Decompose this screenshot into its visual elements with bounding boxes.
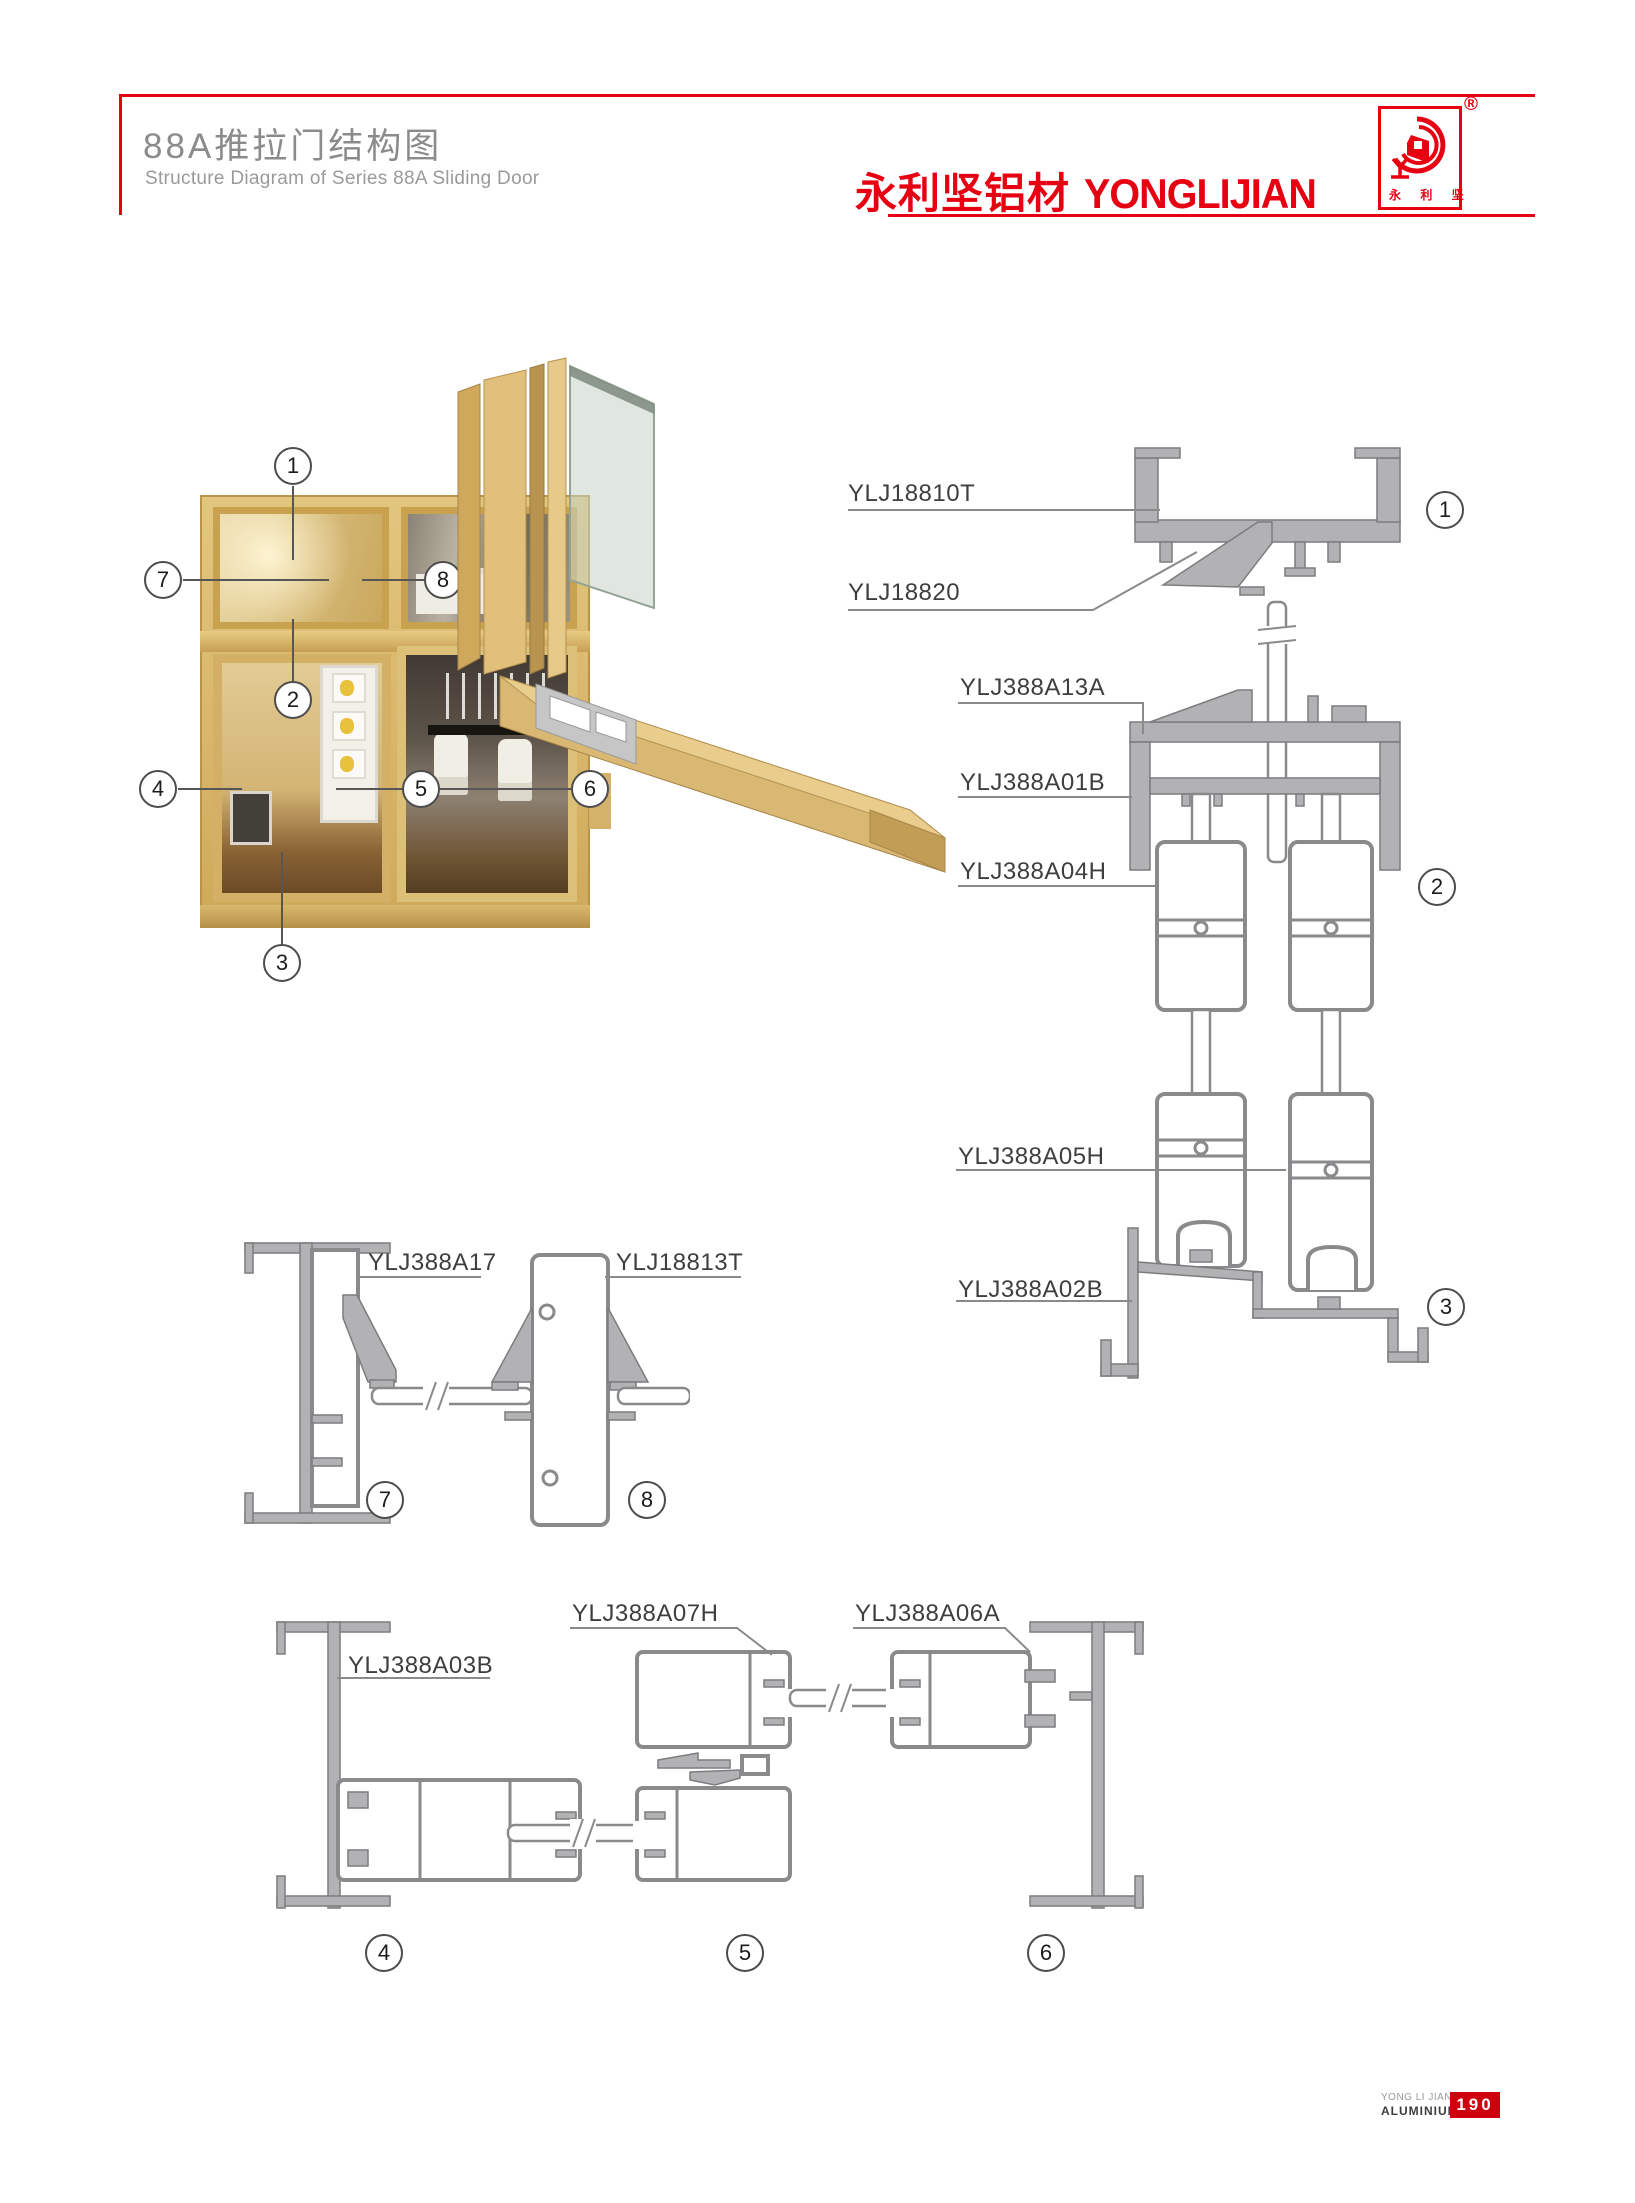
callout-7-drawing: 7 [366, 1481, 404, 1519]
callout-8-drawing: 8 [628, 1481, 666, 1519]
callout-5-photo: 5 [402, 770, 440, 808]
underline-ylj388a06a [853, 1627, 1006, 1629]
underline-ylj388a05h [956, 1169, 1286, 1171]
underline-ylj388a04h [958, 885, 1158, 887]
callout-2-photo: 2 [274, 681, 312, 719]
brand-logo-caption: 永 利 坚 [1381, 186, 1459, 203]
underline-ylj388a13a [958, 702, 1144, 704]
underline-ylj388a07h [570, 1627, 738, 1629]
brand-logo: 永 利 坚 [1378, 106, 1462, 210]
part-label-ylj388a03b: YLJ388A03B [348, 1652, 493, 1680]
leader-3 [281, 852, 283, 944]
brand-logo-mark-icon [1381, 111, 1459, 183]
part-label-ylj18813t: YLJ18813T [616, 1249, 743, 1277]
part-label-ylj388a05h: YLJ388A05H [958, 1143, 1104, 1171]
profile-3d-render [440, 340, 960, 890]
leader-8 [362, 579, 424, 581]
leader-2 [292, 619, 294, 681]
part-label-ylj388a17: YLJ388A17 [368, 1249, 497, 1277]
part-label-ylj388a06a: YLJ388A06A [855, 1600, 1000, 1628]
footer-company-line1: YONG LI JIAN [1381, 2092, 1452, 2103]
brand-name-en: YONGLIJIAN [1084, 170, 1316, 218]
callout-3-drawing: 3 [1427, 1288, 1465, 1326]
brand-wordmark: 永利坚铝材 YONGLIJIAN [855, 160, 1335, 221]
underline-ylj388a01b [958, 796, 1132, 798]
header-left-rule [119, 94, 122, 215]
part-label-ylj388a13a: YLJ388A13A [960, 674, 1105, 702]
leader-1 [292, 486, 294, 560]
callout-5-drawing: 5 [726, 1934, 764, 1972]
callout-4-photo: 4 [139, 770, 177, 808]
registered-mark: ® [1464, 94, 1478, 116]
underline-ylj388a02b [956, 1300, 1132, 1302]
underline-ylj18820 [848, 609, 1093, 611]
callout-7-photo: 7 [144, 561, 182, 599]
leader-7 [183, 579, 329, 581]
callout-6-drawing: 6 [1027, 1934, 1065, 1972]
page-number-badge: 190 [1450, 2092, 1500, 2118]
part-label-ylj18820: YLJ18820 [848, 579, 960, 607]
page-subtitle: Structure Diagram of Series 88A Sliding … [145, 168, 539, 190]
part-label-ylj18810t: YLJ18810T [848, 480, 975, 508]
part-label-ylj388a07h: YLJ388A07H [572, 1600, 718, 1628]
header-top-rule [120, 94, 1535, 97]
callout-2-drawing: 2 [1418, 868, 1456, 906]
leader-5 [336, 788, 402, 790]
callout-4-drawing: 4 [365, 1934, 403, 1972]
bottom-track [200, 905, 590, 928]
callout-3-photo: 3 [263, 944, 301, 982]
page-title: 88A推拉门结构图 [143, 118, 442, 169]
footer-company-line2: ALUMINIUM [1381, 2104, 1459, 2118]
leader-4 [178, 788, 242, 790]
underline-ylj18810t [848, 509, 1160, 511]
connector-ylj388a13a [1142, 702, 1144, 734]
fixed-window-left [213, 507, 389, 629]
catalog-page: 88A推拉门结构图 Structure Diagram of Series 88… [0, 0, 1635, 2203]
underline-ylj388a17 [357, 1276, 481, 1278]
brand-name-cn: 永利坚铝材 [855, 160, 1070, 221]
underline-ylj18813t [605, 1276, 741, 1278]
part-label-ylj388a04h: YLJ388A04H [960, 858, 1106, 886]
underline-ylj388a03b [337, 1677, 490, 1679]
callout-1-drawing: 1 [1426, 491, 1464, 529]
part-label-ylj388a01b: YLJ388A01B [960, 769, 1105, 797]
callout-1-photo: 1 [274, 447, 312, 485]
